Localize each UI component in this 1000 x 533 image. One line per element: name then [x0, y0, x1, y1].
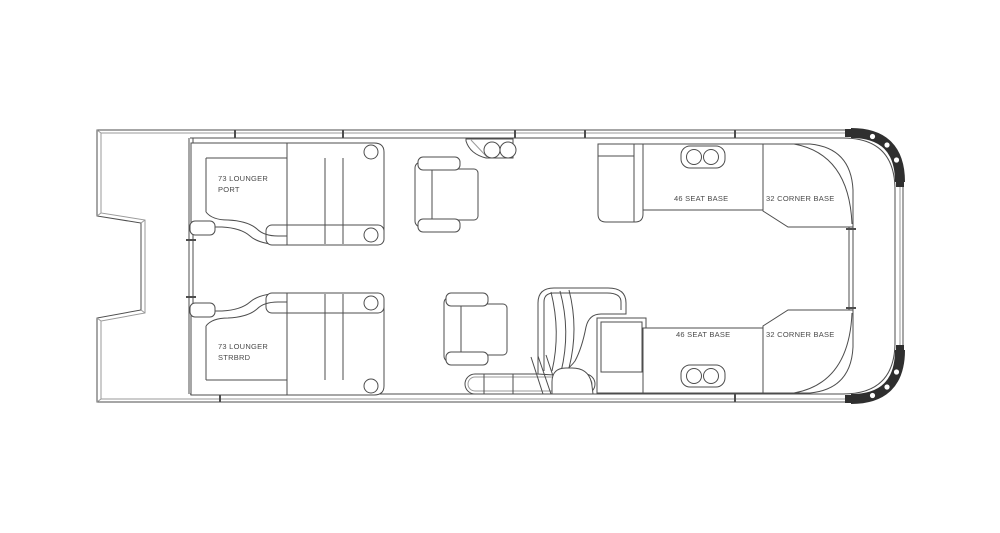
label-seat-base-port: 46 SEAT BASE: [674, 194, 728, 205]
cupholder-icon: [364, 228, 378, 242]
label-lounger-port: 73 LOUNGER PORT: [218, 174, 268, 195]
cupholder-icon: [704, 150, 719, 165]
cupholder-icon: [704, 369, 719, 384]
captain-chair-aft: [444, 293, 507, 365]
cupholder-icon: [687, 150, 702, 165]
label-lounger-starboard-line1: 73 LOUNGER: [218, 342, 268, 353]
cupholder-icon: [364, 296, 378, 310]
label-lounger-starboard: 73 LOUNGER STRBRD: [218, 342, 268, 363]
label-lounger-port-line1: 73 LOUNGER: [218, 174, 268, 185]
label-corner-base-starboard: 32 CORNER BASE: [766, 330, 835, 341]
port-cupholders: [681, 146, 725, 168]
label-corner-base-port-text: 32 CORNER BASE: [766, 194, 835, 205]
cupholder-icon: [484, 142, 500, 158]
cupholder-icon: [364, 379, 378, 393]
port-end-seat: [598, 144, 643, 222]
boat-floor-plan-page: 73 LOUNGER PORT 73 LOUNGER STRBRD 46 SEA…: [0, 0, 1000, 533]
starboard-corner-base: [763, 310, 853, 393]
starboard-cupholders: [681, 365, 725, 387]
label-corner-base-port: 32 CORNER BASE: [766, 194, 835, 205]
label-lounger-starboard-line2: STRBRD: [218, 353, 268, 364]
cupholder-icon: [687, 369, 702, 384]
cupholder-icon: [364, 145, 378, 159]
label-corner-base-starboard-text: 32 CORNER BASE: [766, 330, 835, 341]
port-corner-base: [763, 144, 853, 227]
label-lounger-port-line2: PORT: [218, 185, 268, 196]
cupholder-icon: [500, 142, 516, 158]
label-seat-base-port-text: 46 SEAT BASE: [674, 194, 728, 205]
label-seat-base-starboard: 46 SEAT BASE: [676, 330, 730, 341]
helm-seat: [597, 318, 646, 393]
boat-floor-plan-drawing: [0, 0, 1000, 533]
label-seat-base-starboard-text: 46 SEAT BASE: [676, 330, 730, 341]
